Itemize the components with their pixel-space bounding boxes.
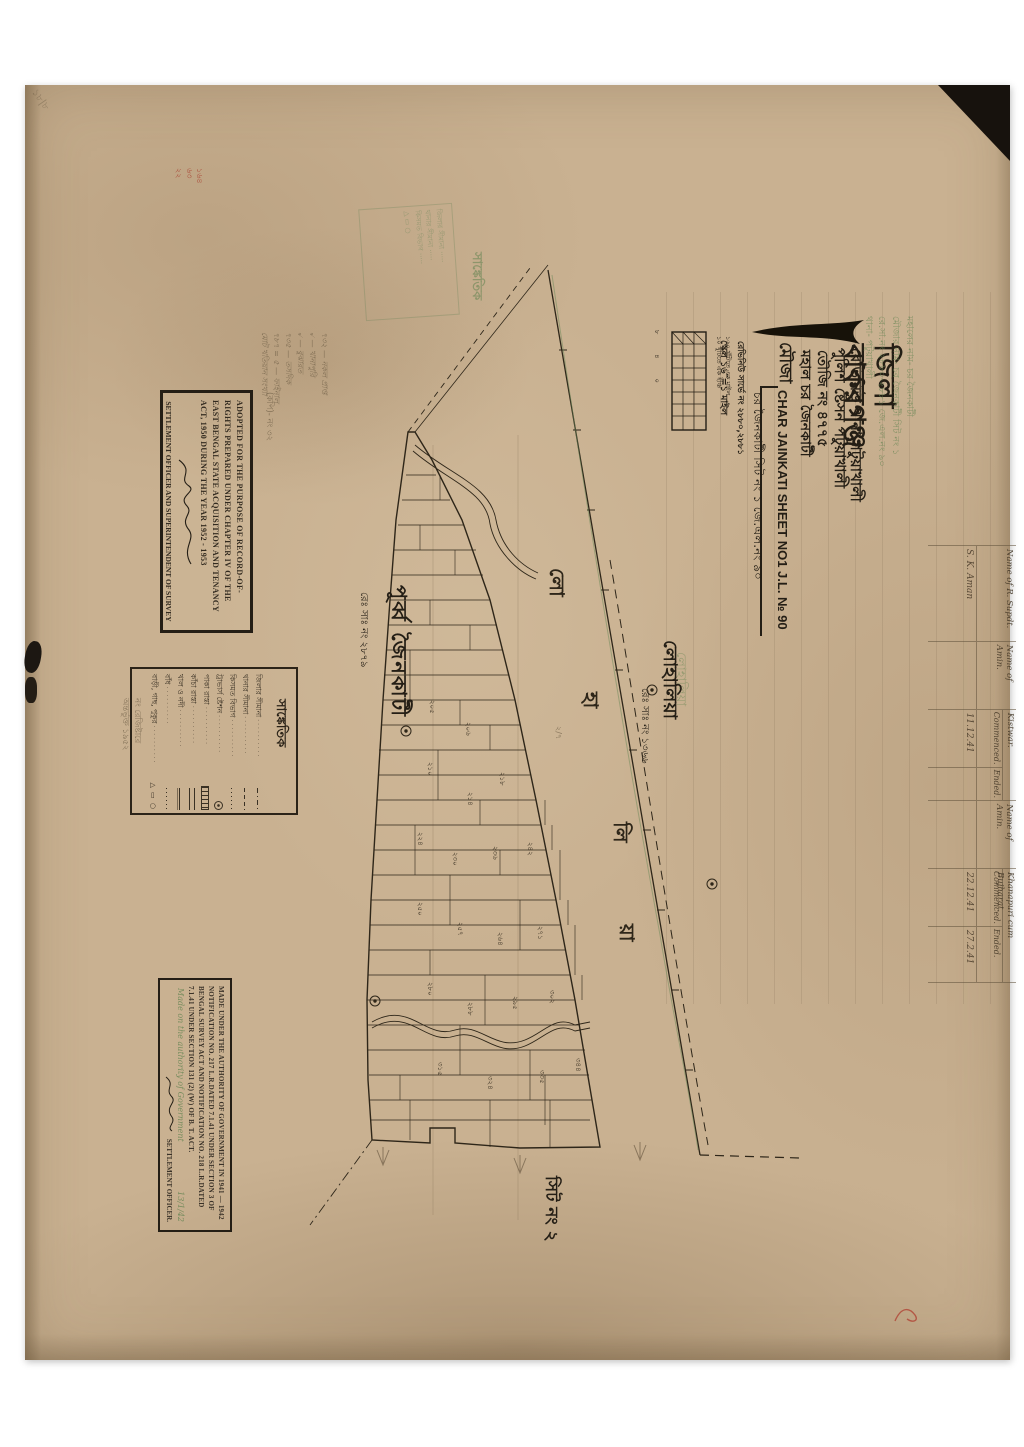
legend-row: বাঁধ·········· xyxy=(160,674,173,810)
table-col3-header: Name of Amin. xyxy=(976,801,1016,868)
plot-number: ২৫০ xyxy=(414,902,426,916)
cadastral-map xyxy=(290,235,810,1265)
red-scribble xyxy=(893,1303,923,1325)
legend-rows: জিলার সীমানা··········থানার সীমানা······… xyxy=(136,674,264,810)
title-police-station: পুলিশ ষ্টেসন পটুয়াখালী xyxy=(827,348,847,563)
label-sheet-2: সিট নং ২ xyxy=(540,1176,564,1246)
legend-leader: ·········· xyxy=(254,719,261,784)
plot-number: ২১৪ xyxy=(464,792,476,806)
table-col1-value: S. K. Aman xyxy=(928,546,976,641)
pencil-note-line: ৭৮৭ = ৫ — ফাইনাল xyxy=(270,332,282,452)
torn-corner xyxy=(938,85,1010,161)
label-purba-jainkati: পূর্ব্ব জৈনকাটী xyxy=(385,585,415,735)
authority-date-note: 13/1/42 xyxy=(176,1191,185,1222)
green-note-line: রে.সা.নং ২৮৮০-২৮৮১ জে.এল.নং ৯০ xyxy=(875,316,889,511)
legend-row: খাল ও নদী·········· xyxy=(173,674,186,810)
legend-box: সাঙ্কেতিক জিলার সীমানা··········থানার সী… xyxy=(130,667,298,815)
legend-title: সাঙ্কেতিক xyxy=(270,699,290,791)
plot-number: ২৪২ xyxy=(524,842,536,856)
legend-label: কিসমত বিভাগ xyxy=(226,674,238,718)
red-mark: ৬৩ xyxy=(183,168,193,218)
label-lohalia: লোহালিয়া xyxy=(658,640,684,760)
plot-number: ২৮০ xyxy=(424,982,436,996)
register-note-line: অন্তর্ভুক্ত ১৯৫২ xyxy=(118,698,130,820)
river-letter: লো xyxy=(538,568,571,597)
legend-label: বাঁধ xyxy=(161,674,173,685)
red-mark: ১৬৪ xyxy=(194,168,204,218)
table-col3-value xyxy=(928,801,976,868)
legend-row: জিলার সীমানা·········· xyxy=(251,674,264,810)
plot-number: ২৩০ xyxy=(449,852,461,866)
plot-number: ৩০২ xyxy=(546,990,558,1004)
legend-symbol-hatch xyxy=(202,786,210,810)
settlement-officer-signature-2 xyxy=(162,1073,176,1133)
edge-ink-blot xyxy=(22,640,43,674)
plot-number: ৩৩৫ xyxy=(536,1070,548,1084)
table-group2-title: Khanapuri cum Bujharat. xyxy=(1002,869,1016,982)
legend-leader: ·········· xyxy=(215,715,222,797)
plot-number: ২৬৪ xyxy=(494,932,506,946)
green-note-line: মৌজার নাম- চর জৈনকাটী সিট নং ১ xyxy=(888,316,902,511)
legend-row: থানার সীমানা·········· xyxy=(238,674,251,810)
label-purba-rs-number: রেঃ সাঃ নং ২৮৭৯ xyxy=(357,592,371,682)
green-note-line: থানা- পটুয়াখালী xyxy=(861,316,875,511)
green-manuscript-note: মহালের নাম- চর জৈনকাটীমৌজার নাম- চর জৈনক… xyxy=(856,316,916,511)
authority-stamp-footer: SETTLEMENT OFFICER. xyxy=(165,1139,173,1222)
table-col2-header: Name of Amin. xyxy=(976,642,1016,709)
legend-leader: ·········· xyxy=(241,716,248,784)
legend-row: ট্রাভার্স ষ্টেশন·········· xyxy=(212,674,225,810)
legend-label: জিলার সীমানা xyxy=(252,674,264,717)
legend-symbol-dash xyxy=(244,788,245,810)
authority-stamp-text: MADE UNDER THE AUTHORITY OF GOVERNMENT I… xyxy=(185,980,230,1230)
legend-row: কাঁচা রাস্তা·········· xyxy=(186,674,199,810)
table-group2-val2: 27.2.41 xyxy=(928,927,976,982)
table-group1-val1: 11.12.41 xyxy=(928,710,976,767)
plot-number: ২৮৮ xyxy=(464,1002,476,1016)
table-group1-val2 xyxy=(928,768,976,801)
plot-number: ২৯৫ xyxy=(509,996,521,1010)
plot-number: ২৫৭ xyxy=(454,922,466,936)
authority-script-note: Made on the authority of Government xyxy=(176,988,185,1142)
table-group1-sub1: Commenced. xyxy=(976,710,1002,767)
legend-leader: ·········· xyxy=(189,706,196,784)
legend-label: পাকা রাস্তা xyxy=(200,674,212,705)
map-pencil-note: ২/৭ xyxy=(552,726,564,750)
plot-number: ২১৮ xyxy=(496,772,508,786)
legend-leader: ·········· xyxy=(163,687,170,784)
plot-number: ৩২৪ xyxy=(484,1076,496,1090)
legend-symbol-dots xyxy=(166,788,167,810)
label-lohalia-rs-number: রেঃ সাঃ নং ১৩৬৬ xyxy=(638,688,652,778)
red-mark: ২২ xyxy=(173,168,183,218)
pencil-note-line: মোট খতিয়ান সংখ্যা xyxy=(258,332,270,452)
table-group1-title: Kistwar. xyxy=(1002,710,1016,800)
plot-number: ২৩৬ xyxy=(489,846,501,860)
plot-number: ৩৪৪ xyxy=(572,1058,584,1072)
table-group2-sub1: Commenced. xyxy=(976,869,1002,926)
legend-symbol-dots xyxy=(231,788,232,810)
plot-number: ৩১৫ xyxy=(434,1062,446,1076)
survey-progress-table: Name of R. Supdt. S. K. Aman Name of Ami… xyxy=(928,545,1016,983)
adopted-stamp-footer: SETTLEMENT OFFICER AND SUPERINTENDENT OF… xyxy=(164,393,173,630)
river-letter: য়া xyxy=(608,924,641,942)
edge-ink-blot xyxy=(25,677,37,703)
plot-number: ২১০ xyxy=(424,762,436,776)
plot-number: ২০৫ xyxy=(426,700,438,714)
legend-symbol-shapes: △ ▭ ○ xyxy=(150,782,158,810)
legend-label: থানার সীমানা xyxy=(239,674,251,714)
legend-label: খাল ও নদী xyxy=(174,674,186,708)
green-note-line: মহালের নাম- চর জৈনকাটী xyxy=(902,316,916,511)
table-group2-sub2: Ended. xyxy=(976,927,1002,982)
legend-leader: ·········· xyxy=(176,710,183,784)
river-letter: হা xyxy=(572,692,605,708)
legend-label: কাঁচা রাস্তা xyxy=(187,674,199,704)
legend-label: ট্রাভার্স ষ্টেশন xyxy=(213,674,225,713)
legend-row: বাড়ী, গাছ, পুকুর··········△ ▭ ○ xyxy=(147,674,160,810)
legend-symbol-station xyxy=(214,801,223,810)
table-group1-sub2: Ended. xyxy=(976,768,1002,801)
legend-leader: ·········· xyxy=(228,720,235,784)
plot-number: ২২৪ xyxy=(414,832,426,846)
legend-row: পাকা রাস্তা·········· xyxy=(199,674,212,810)
legend-symbol-water xyxy=(179,788,180,810)
scan-background: ১৮|৮ ১৬৪৬৩২২ জিলা বাকরগঞ্জ রেভিনিউ থানা … xyxy=(0,0,1024,1447)
table-col2-value xyxy=(928,642,976,709)
legend-leader: ·········· xyxy=(150,725,157,778)
legend-symbol-dashdot xyxy=(257,788,258,810)
legend-row: কিসমত বিভাগ·········· xyxy=(225,674,238,810)
plot-number: ২৭১ xyxy=(534,926,546,940)
table-group2-val1: 22.12.41 xyxy=(928,869,976,926)
table-col1-header: Name of R. Supdt. xyxy=(976,546,1016,641)
plot-number: ২০৬ xyxy=(462,722,474,736)
authority-stamp: MADE UNDER THE AUTHORITY OF GOVERNMENT I… xyxy=(158,978,232,1232)
red-margin-marks: ১৬৪৬৩২২ xyxy=(168,168,204,218)
river-letter: লি xyxy=(602,822,635,843)
legend-label: বাড়ী, গাছ, পুকুর xyxy=(148,674,160,723)
legend-symbol-dbar xyxy=(190,788,196,810)
settlement-officer-signature xyxy=(173,452,197,572)
legend-leader: ·········· xyxy=(202,707,209,782)
